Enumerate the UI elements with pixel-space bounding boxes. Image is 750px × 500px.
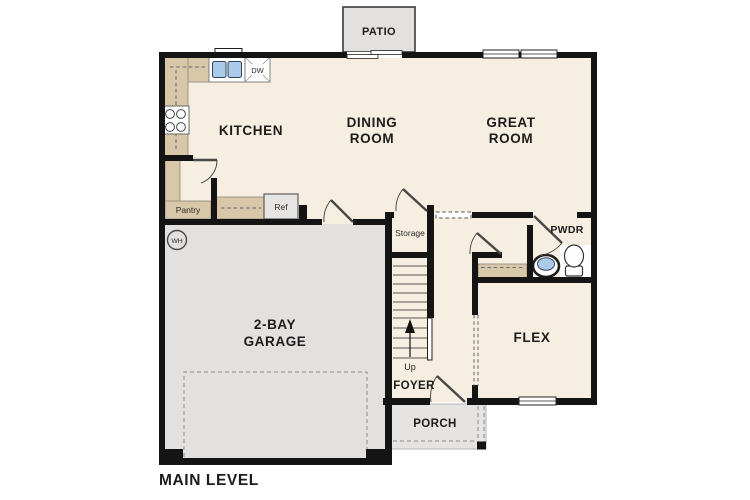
dishwasher-label: DW [251,66,264,75]
floor-plan-page: DW Ref Pantry WH [0,0,750,500]
pantry-label: Pantry [176,205,201,215]
dining-room-label-line2: ROOM [350,131,394,146]
sink-basin-left [213,62,227,78]
water-heater: WH [168,231,187,250]
garage-right-wall [385,212,392,465]
porch-post [477,442,486,450]
stove [162,106,189,134]
garage-bottom-wall [159,458,390,465]
sink-basin-right [228,62,242,78]
page-title: MAIN LEVEL [159,472,259,489]
storage-label: Storage [395,228,425,238]
toilet [565,245,584,276]
dining-room-label-line1: DINING [347,115,398,130]
garage-label-line2: GARAGE [244,334,307,349]
up-label: Up [404,362,416,372]
garage-label-line1: 2-BAY [254,317,296,332]
powder-label: PWDR [550,224,583,236]
dishwasher: DW [245,57,270,82]
flex-label: FLEX [514,330,551,345]
refrigerator-label: Ref [274,202,288,212]
closet-shelf [478,264,527,278]
refrigerator: Ref [264,194,298,219]
left-wall [159,52,165,465]
stair-handrail [428,318,433,360]
great-room-label-line1: GREAT [486,115,535,130]
floor-plan: DW Ref Pantry WH [0,0,750,500]
hall-cased-opening [436,212,471,218]
porch-label: PORCH [413,418,457,430]
water-heater-label: WH [171,238,182,245]
foyer-closet [478,264,527,278]
patio-label: PATIO [362,26,396,38]
kitchen-label: KITCHEN [219,123,283,138]
foyer-label: FOYER [393,380,435,392]
right-wall [591,52,597,405]
great-room-label-line2: ROOM [489,131,533,146]
powder-sink [533,255,559,277]
